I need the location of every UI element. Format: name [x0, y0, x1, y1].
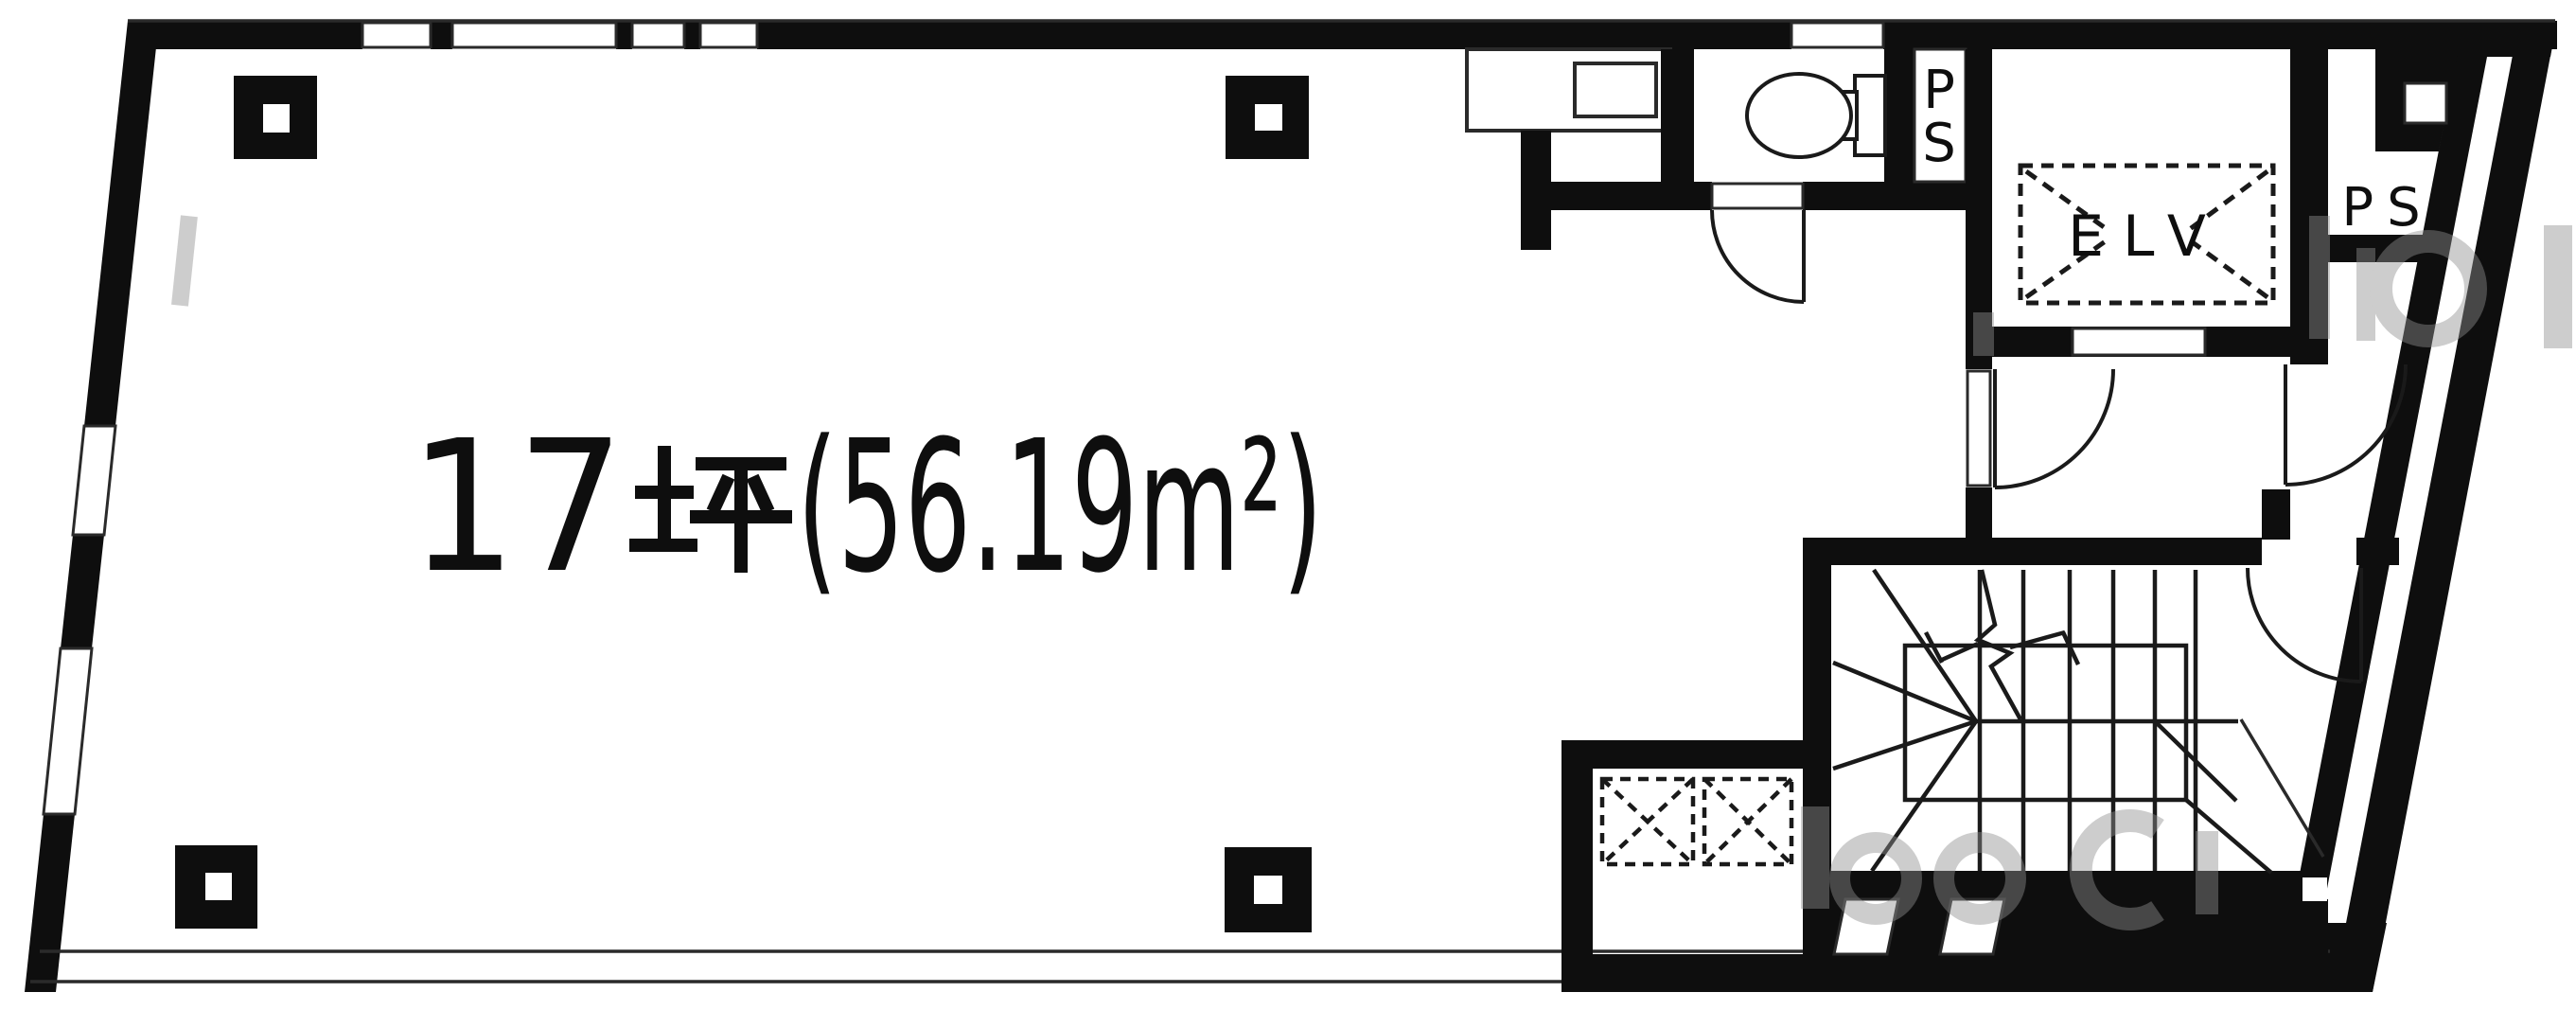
area-label: 17 (56.19m²) [409, 402, 1323, 613]
column [1225, 847, 1312, 932]
door-wall-stub [2262, 489, 2290, 540]
toilet-icon [1747, 74, 1885, 157]
elevator-label: ELV [2068, 204, 2225, 270]
floor-plan-canvas: P S ELV PS [0, 0, 2576, 1010]
area-label-number: 17 [409, 402, 625, 613]
wc-door-opening [1712, 184, 1803, 208]
column [1226, 76, 1309, 159]
pipe-shaft-right-label: PS [2341, 177, 2433, 239]
elevator-door-opening [2073, 328, 2205, 355]
shaft-square [2405, 83, 2446, 123]
window-top-1 [362, 23, 431, 47]
wall-notch [2303, 877, 2327, 901]
sink [1575, 63, 1656, 116]
entrance-door-opening [1967, 371, 1990, 486]
window-top-2 [452, 23, 616, 47]
window-top-3 [632, 23, 684, 47]
pipe-shaft-top: P S [1914, 49, 1966, 182]
pipe-shaft-top-letter-s: S [1922, 113, 1956, 174]
window-top-5 [1791, 23, 1883, 47]
column [175, 845, 257, 929]
column [234, 76, 317, 159]
area-label-metric: (56.19m²) [797, 402, 1323, 613]
window-top-4 [700, 23, 757, 47]
